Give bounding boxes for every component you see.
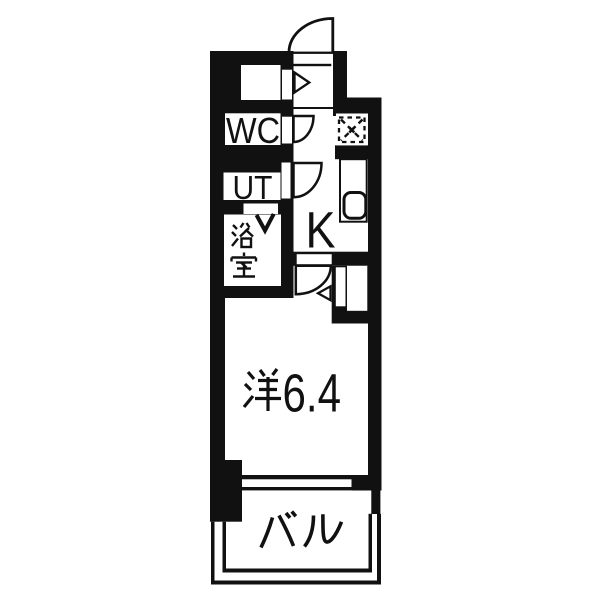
svg-text:UT: UT — [233, 169, 273, 206]
svg-text:K: K — [306, 202, 336, 259]
svg-text:WC: WC — [226, 110, 280, 151]
svg-text:6.4: 6.4 — [283, 364, 342, 424]
